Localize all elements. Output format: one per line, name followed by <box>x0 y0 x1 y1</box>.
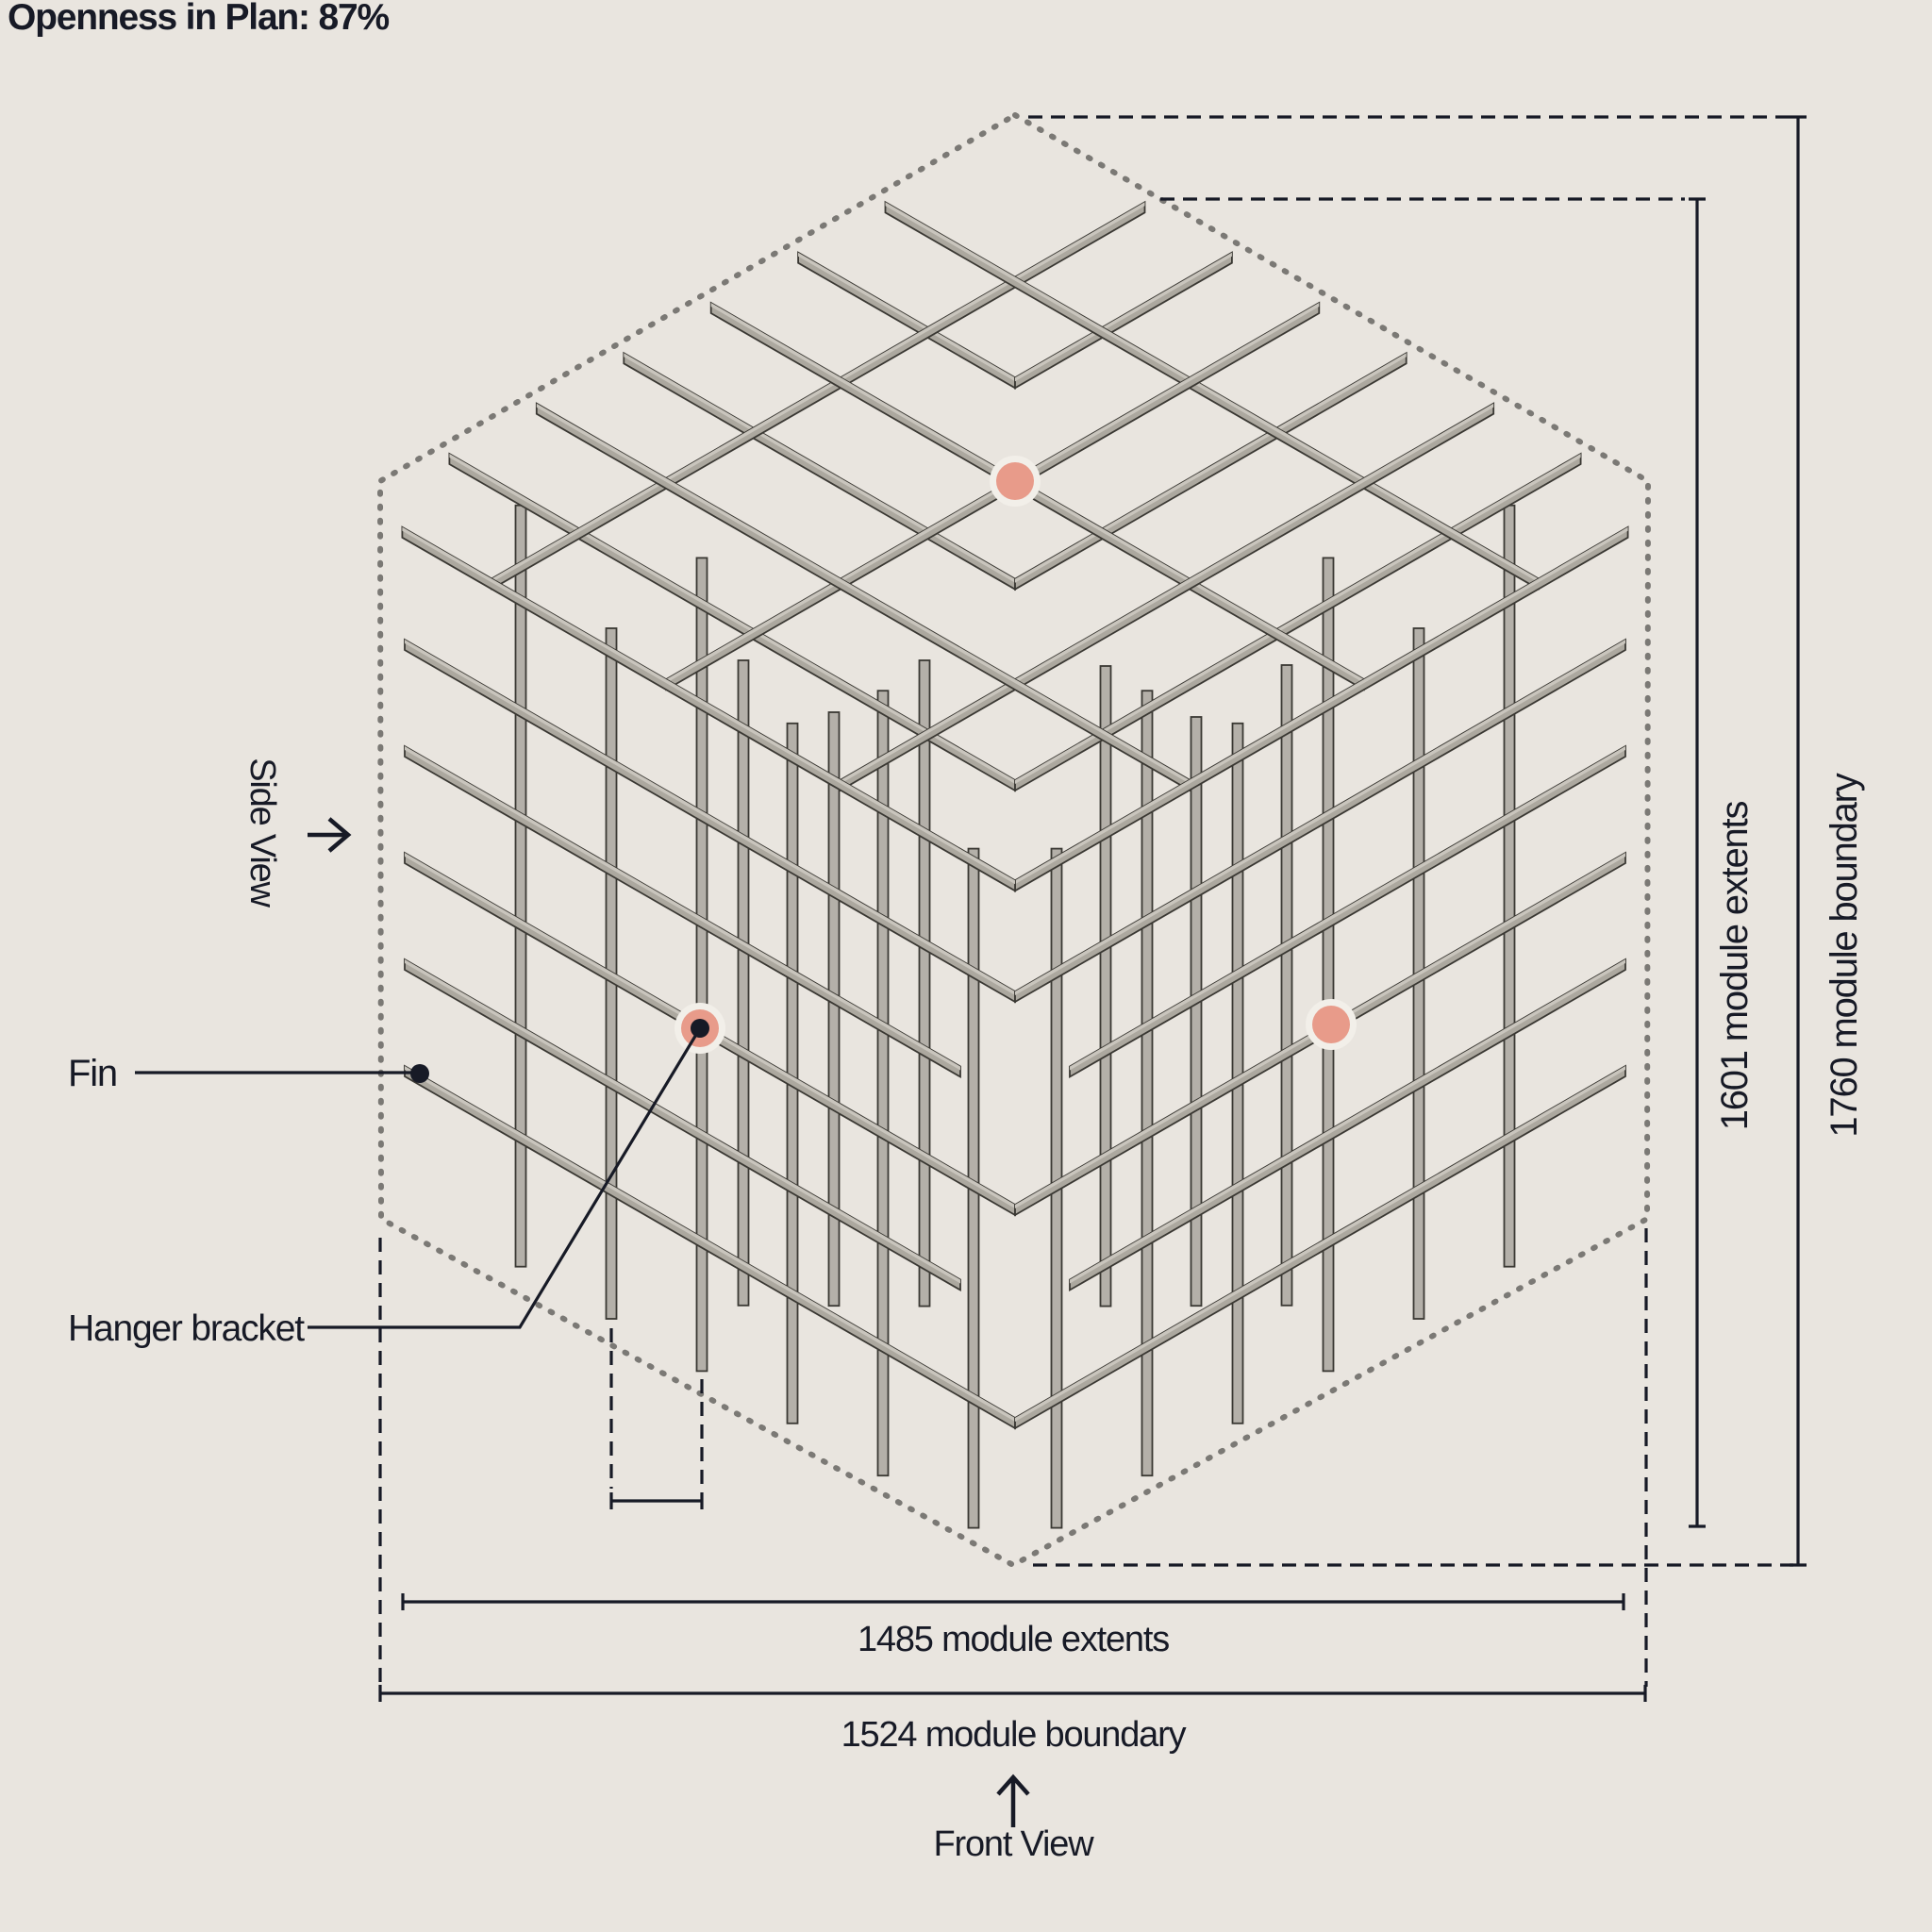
svg-text:Front View: Front View <box>934 1824 1095 1864</box>
svg-text:1601 module extents: 1601 module extents <box>1714 802 1756 1131</box>
svg-text:Hanger bracket: Hanger bracket <box>68 1308 305 1349</box>
svg-text:Side View: Side View <box>242 758 282 908</box>
svg-text:1760 module boundary: 1760 module boundary <box>1824 773 1865 1137</box>
svg-text:Fin: Fin <box>68 1053 117 1094</box>
svg-text:1524 module boundary: 1524 module boundary <box>841 1715 1187 1755</box>
svg-text:1485 module extents: 1485 module extents <box>858 1620 1169 1659</box>
svg-text:Openness in Plan: 87%: Openness in Plan: 87% <box>8 0 389 38</box>
